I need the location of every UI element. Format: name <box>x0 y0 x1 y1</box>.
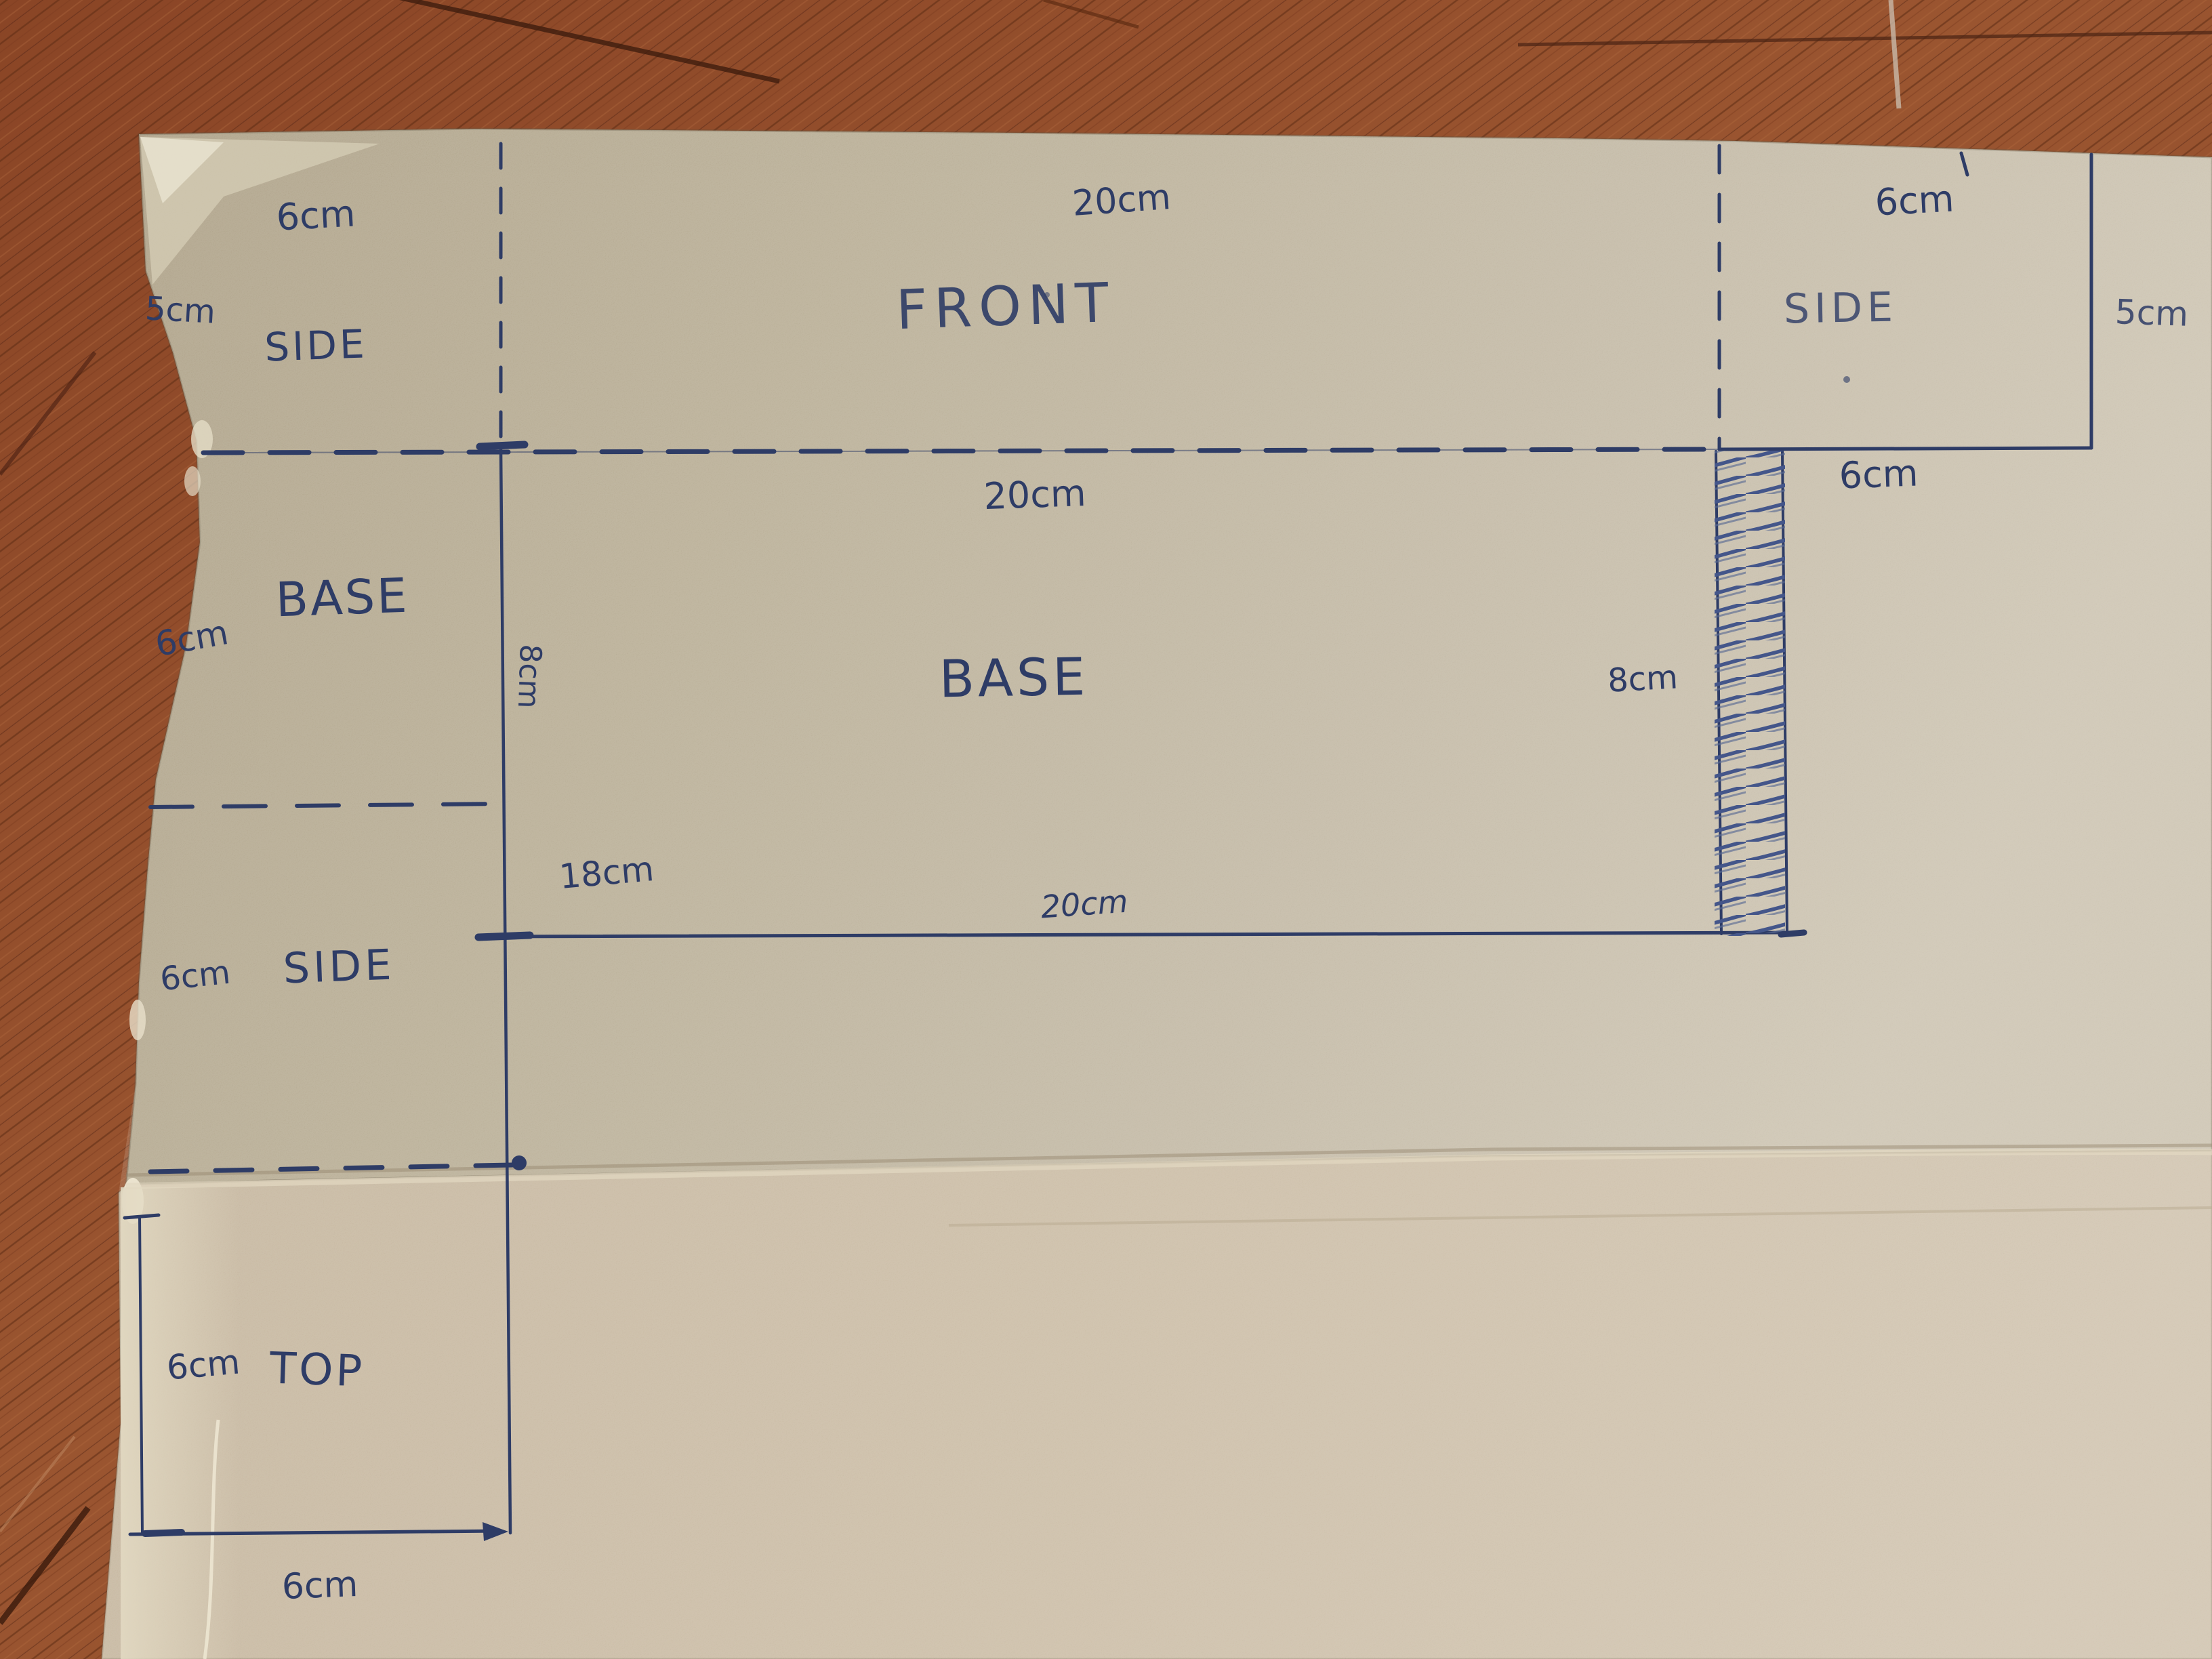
glue-strip-hatching <box>1706 447 1795 939</box>
panel-label-side-flap: SIDE <box>282 940 395 994</box>
measurement-top-panel-height: 6cm <box>165 1342 242 1387</box>
measurement-base-bottom-inner: 18cm <box>558 849 655 897</box>
measurement-front-width: 20cm <box>1071 177 1172 224</box>
measurement-top-left-height: 5cm <box>144 289 216 331</box>
photo-of-box-pattern: 6cm 5cm SIDE 20cm FRONT 6cm SIDE 5cm 20c… <box>0 0 2212 1659</box>
panel-label-side-top-right: SIDE <box>1783 284 1898 333</box>
torn-edge-strip <box>121 1187 239 1659</box>
measurement-top-right-height: 5cm <box>2114 292 2189 334</box>
torn-edge-bit <box>129 1000 146 1040</box>
measurement-side-flap-height: 6cm <box>159 954 232 999</box>
panel-label-base-flap: BASE <box>274 568 409 628</box>
tick-mark <box>145 1532 182 1534</box>
torn-edge-bit <box>184 466 201 496</box>
right-side-bottom-line <box>1719 448 2091 449</box>
ink-dot <box>1843 376 1850 383</box>
cardboard-sheet <box>0 0 2212 1659</box>
measurement-base-top-width: 20cm <box>983 472 1086 518</box>
measurement-top-right-width: 6cm <box>1874 177 1955 224</box>
measurement-glue-strip-width: 6cm <box>1839 451 1919 497</box>
panel-label-front: FRONT <box>895 271 1116 342</box>
panel-label-top: TOP <box>269 1344 366 1397</box>
tick-mark <box>478 935 530 937</box>
panel-label-base-main: BASE <box>939 647 1089 710</box>
measurement-top-panel-width: 6cm <box>281 1564 359 1607</box>
measurement-top-left-width: 6cm <box>275 192 356 239</box>
paper-texture <box>0 0 2212 1659</box>
panel-label-side-top-left: SIDE <box>264 321 368 370</box>
ink-blob <box>512 1155 527 1170</box>
measurement-base-bottom-width: 20cm <box>1040 883 1129 926</box>
measurement-base-right-height: 8cm <box>1607 658 1679 699</box>
scene-drawing <box>0 0 2212 1659</box>
tick-mark <box>480 445 525 447</box>
measurement-base-left-height: 8cm <box>511 644 548 710</box>
